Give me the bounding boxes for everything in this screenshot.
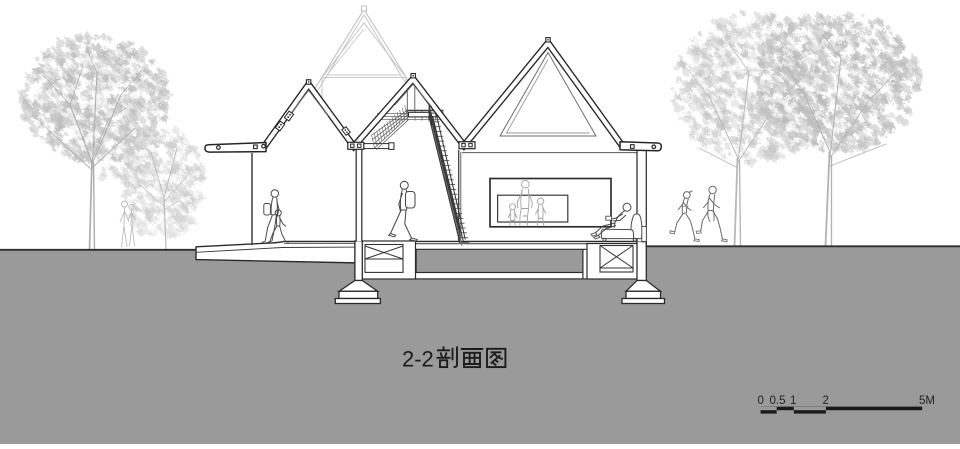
svg-text:2: 2 xyxy=(823,395,829,407)
svg-text:5M: 5M xyxy=(919,395,935,407)
svg-text:2-2: 2-2 xyxy=(402,347,434,372)
svg-text:0: 0 xyxy=(758,395,764,407)
svg-text:0.5: 0.5 xyxy=(770,395,786,407)
svg-text:1: 1 xyxy=(790,395,796,407)
